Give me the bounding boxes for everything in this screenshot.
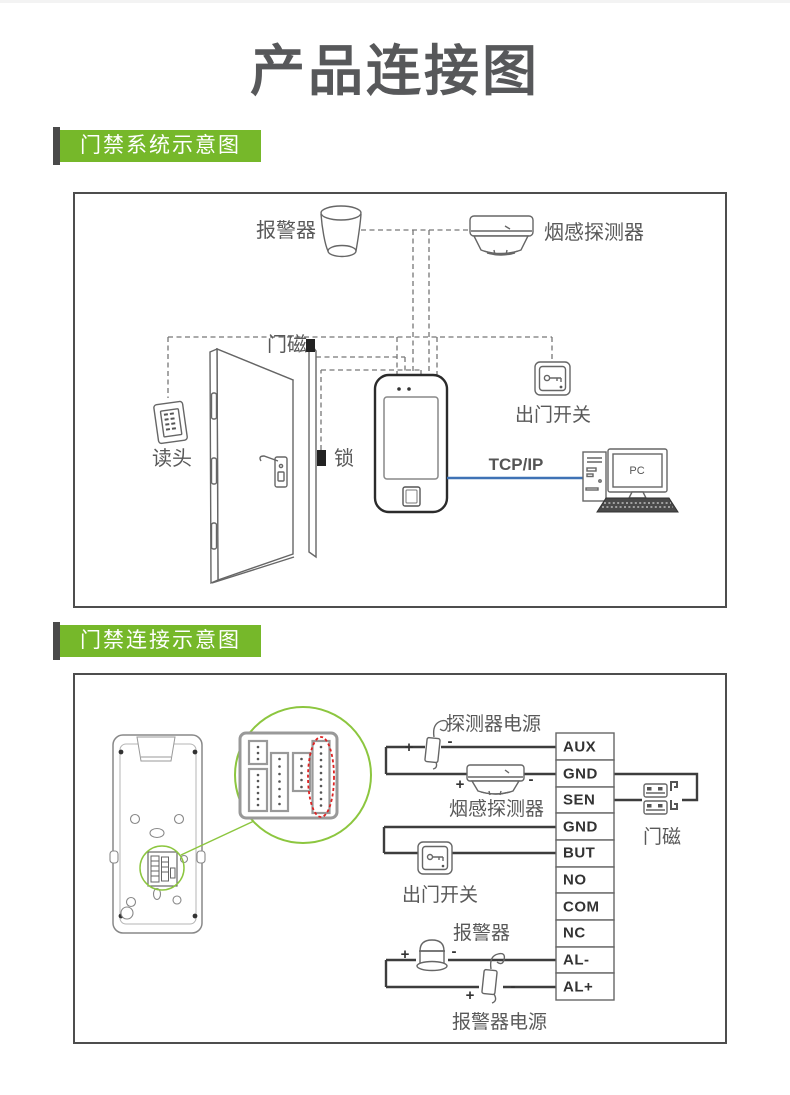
svg-text:GND: GND <box>563 766 598 783</box>
terminal-row: AL- <box>556 947 614 973</box>
door-icon <box>210 341 316 583</box>
exit-switch2-icon <box>418 842 452 874</box>
detector-power-label: 探测器电源 <box>446 713 541 735</box>
header-accent-bar <box>53 622 60 660</box>
tcpip-label: TCP/IP <box>489 455 544 474</box>
exit-switch-label: 出门开关 <box>515 404 591 426</box>
reader-label: 读头 <box>152 447 192 470</box>
door-magnet-icon <box>306 339 315 352</box>
alarm-icon <box>321 206 361 257</box>
alarm-power-label: 报警器电源 <box>452 1011 547 1033</box>
panel-connector-block <box>148 852 177 886</box>
section-header-system-label: 门禁系统示意图 <box>60 130 261 162</box>
smoke-detector2-icon <box>467 765 524 795</box>
alarm2-icon <box>417 940 447 971</box>
terminal-row: NO <box>556 867 614 893</box>
terminal-row: GND <box>556 813 614 840</box>
terminal-block: AUX GND SEN GND BUT NO COM NC AL- AL+ <box>556 733 614 1000</box>
alarm2-label: 报警器 <box>453 922 510 944</box>
plus-sign: + <box>456 776 465 793</box>
svg-text:NO: NO <box>563 872 587 889</box>
svg-text:NC: NC <box>563 925 586 942</box>
detector-power-icon <box>425 721 448 769</box>
terminal-row: AL+ <box>556 973 614 1000</box>
smoke-detector-icon <box>470 216 533 255</box>
svg-text:GND: GND <box>563 819 598 836</box>
minus-sign: - <box>448 733 453 750</box>
section-header-connection-label: 门禁连接示意图 <box>60 625 261 657</box>
pc-label: PC <box>629 465 644 477</box>
lock-label: 锁 <box>334 447 354 470</box>
exit-switch-icon <box>535 362 570 395</box>
minus-sign: - <box>452 943 457 960</box>
exit-switch2-label: 出门开关 <box>402 884 478 906</box>
minus-sign: - <box>529 771 534 788</box>
minus-sign: - <box>511 978 516 995</box>
smoke-detector2-label: 烟感探测器 <box>449 798 544 820</box>
lock-icon <box>317 450 326 466</box>
svg-text:AL-: AL- <box>563 952 590 969</box>
svg-text:AL+: AL+ <box>563 979 593 996</box>
plus-sign: + <box>401 946 410 963</box>
system-diagram: 报警器 烟感探测器 门磁 <box>73 192 727 608</box>
terminal-row: NC <box>556 920 614 947</box>
header-accent-bar <box>53 127 60 165</box>
terminal-row: SEN <box>556 787 614 813</box>
section-header-system: 门禁系统示意图 <box>53 127 261 165</box>
svg-text:BUT: BUT <box>563 845 595 862</box>
plus-sign: + <box>405 739 414 756</box>
connection-diagram: + - 探测器电源 + - 烟感探测器 出门开关 + - 报警器 + - <box>73 673 727 1044</box>
system-diagram-svg: 报警器 烟感探测器 门磁 <box>73 192 727 608</box>
svg-text:COM: COM <box>563 899 600 916</box>
door-magnet2-icon <box>644 782 677 814</box>
alarm-label: 报警器 <box>256 219 316 242</box>
reader-icon <box>153 401 187 444</box>
access-device-icon <box>375 375 447 512</box>
connection-diagram-svg: + - 探测器电源 + - 烟感探测器 出门开关 + - 报警器 + - <box>73 673 727 1044</box>
terminal-row: GND <box>556 760 614 787</box>
terminal-row: AUX <box>556 733 614 760</box>
svg-text:AUX: AUX <box>563 739 596 756</box>
pc-icon: PC <box>583 449 678 512</box>
page-top-edge <box>0 0 790 3</box>
device-back-panel <box>110 735 205 933</box>
door-magnet2-label: 门磁 <box>643 826 681 848</box>
section-header-connection: 门禁连接示意图 <box>53 622 261 660</box>
terminal-row: COM <box>556 893 614 920</box>
door-magnet-label: 门磁 <box>267 333 307 356</box>
svg-text:SEN: SEN <box>563 792 595 809</box>
page-title: 产品连接图 <box>0 26 790 106</box>
connector-detail <box>240 733 337 818</box>
plus-sign: + <box>466 987 475 1004</box>
terminal-row: BUT <box>556 840 614 867</box>
smoke-detector-label: 烟感探测器 <box>544 221 644 244</box>
